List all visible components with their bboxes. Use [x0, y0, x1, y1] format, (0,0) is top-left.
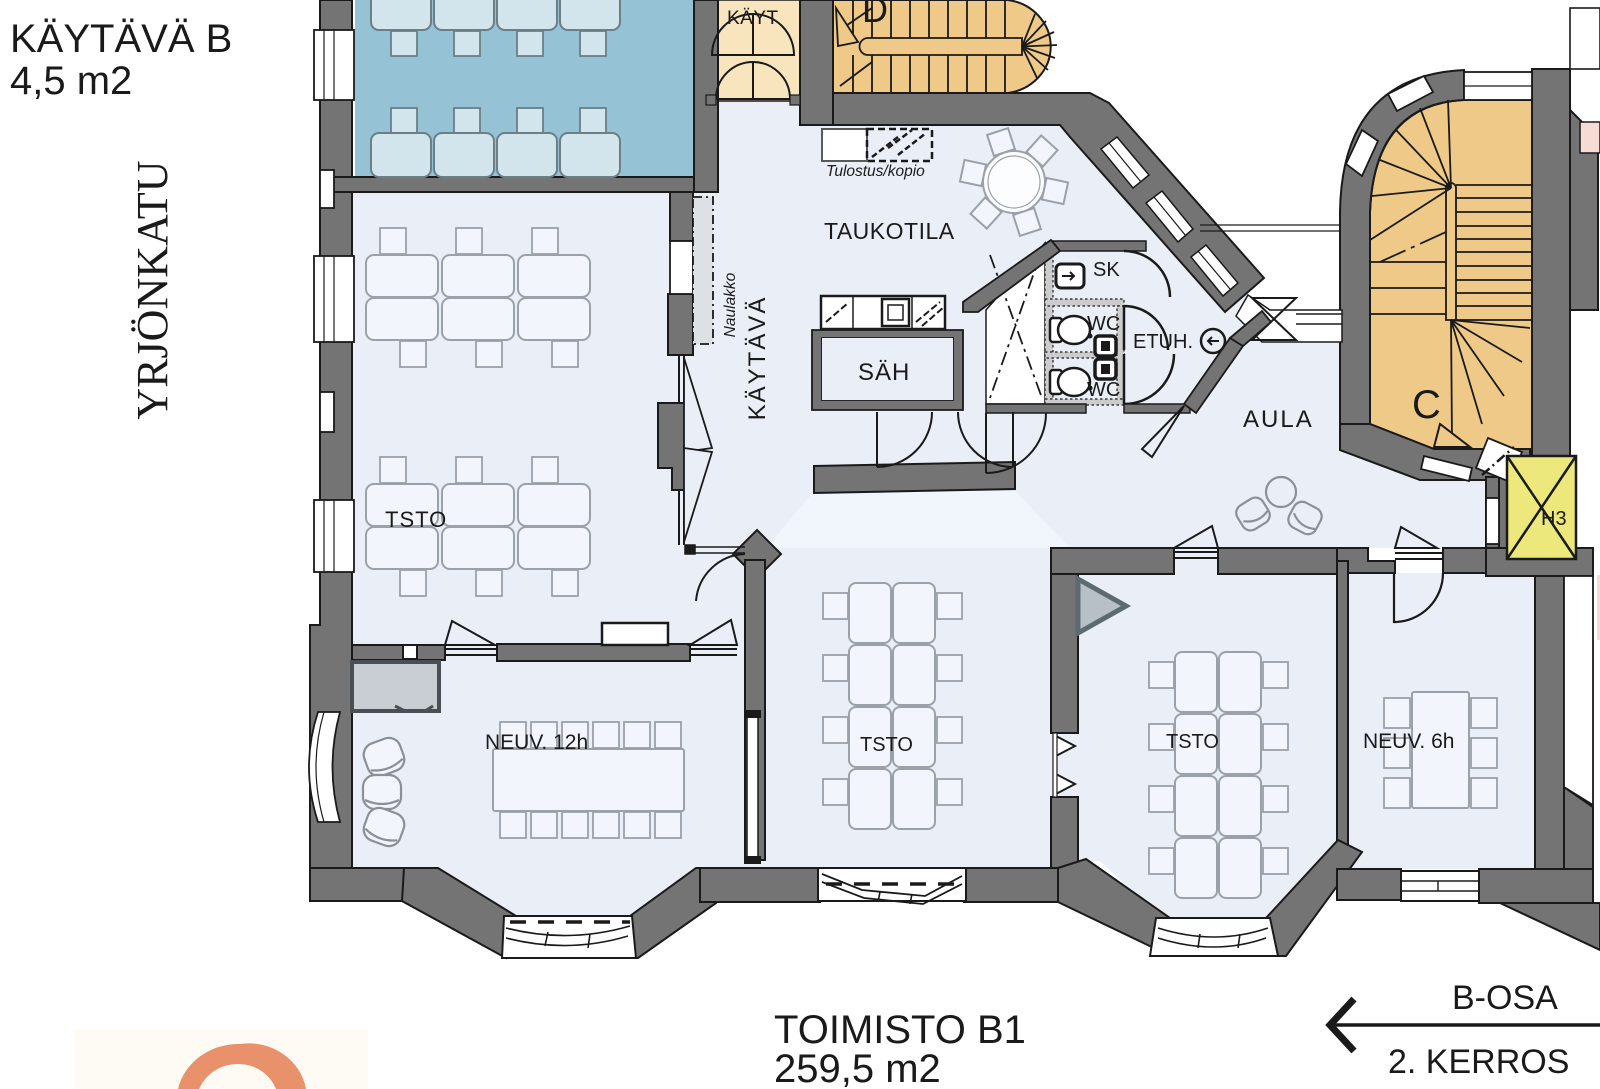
svg-text:2. KERROS: 2. KERROS [1388, 1043, 1569, 1081]
svg-text:NEUV. 12h: NEUV. 12h [485, 731, 588, 754]
svg-text:D: D [862, 0, 888, 30]
svg-text:KÄYT: KÄYT [727, 8, 779, 29]
svg-text:Naulakko: Naulakko [722, 272, 739, 337]
svg-text:H3: H3 [1541, 508, 1567, 530]
svg-text:TOIMISTO B1: TOIMISTO B1 [774, 1008, 1026, 1052]
svg-text:WC: WC [1087, 379, 1120, 401]
svg-text:SÄH: SÄH [858, 359, 910, 386]
svg-text:4,5 m2: 4,5 m2 [10, 59, 132, 103]
svg-text:B-OSA: B-OSA [1452, 979, 1558, 1017]
svg-text:TAUKOTILA: TAUKOTILA [824, 218, 955, 244]
svg-text:KÄYTÄVÄ: KÄYTÄVÄ [744, 296, 771, 421]
svg-text:ETUH.: ETUH. [1133, 331, 1193, 353]
svg-text:Tulostus/kopio: Tulostus/kopio [826, 163, 925, 180]
svg-text:YRJÖNKATU: YRJÖNKATU [128, 160, 177, 419]
svg-text:NEUV. 6h: NEUV. 6h [1363, 730, 1454, 753]
svg-text:SK: SK [1093, 259, 1120, 281]
svg-text:259,5 m2: 259,5 m2 [774, 1047, 941, 1089]
svg-text:TSTO: TSTO [1166, 731, 1219, 753]
svg-text:KÄYTÄVÄ B: KÄYTÄVÄ B [10, 17, 232, 61]
svg-text:TSTO: TSTO [860, 734, 913, 756]
svg-text:WC: WC [1087, 313, 1120, 335]
svg-text:AULA: AULA [1243, 406, 1314, 433]
svg-text:C: C [1412, 383, 1441, 427]
svg-text:TSTO: TSTO [385, 507, 447, 532]
